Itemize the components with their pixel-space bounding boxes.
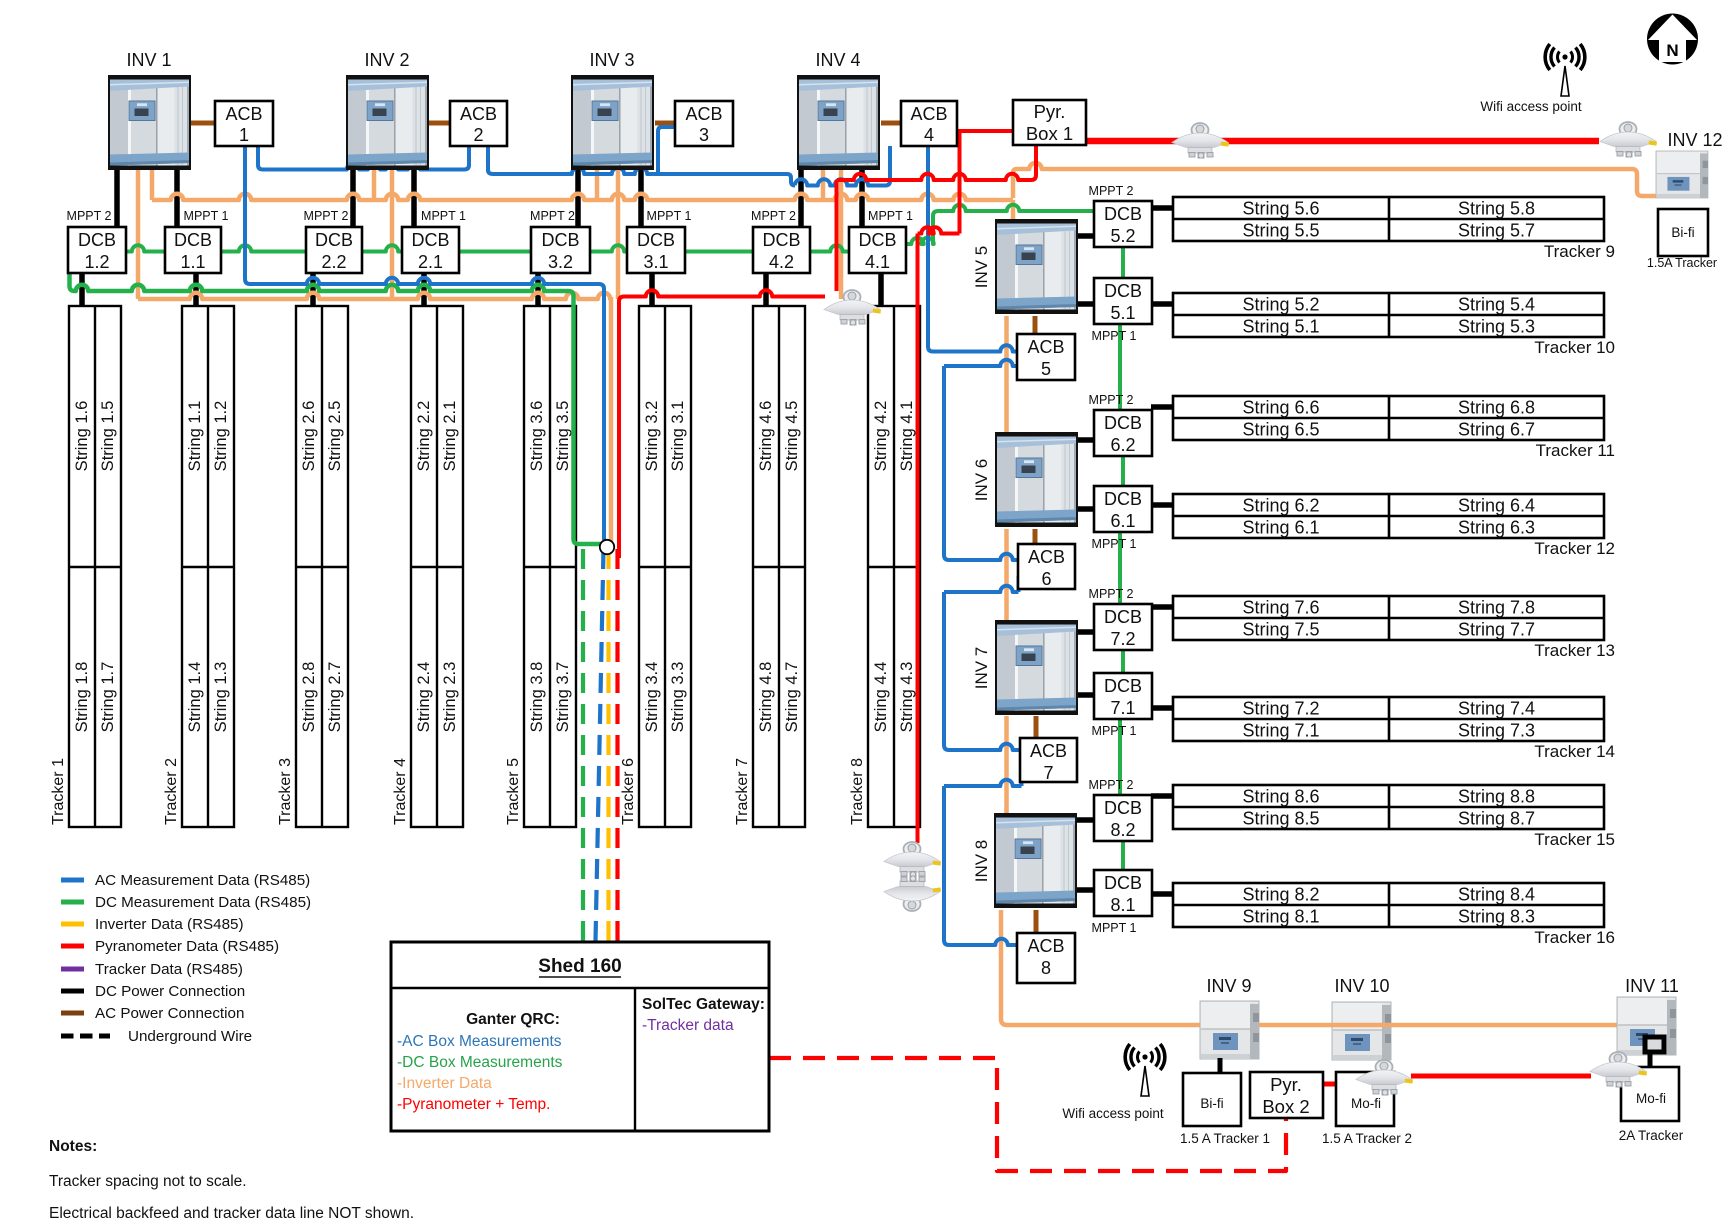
svg-text:String 5.6: String 5.6 <box>1242 199 1319 219</box>
svg-text:3: 3 <box>699 125 709 145</box>
svg-text:String 3.8: String 3.8 <box>528 662 546 733</box>
svg-text:Tracker spacing not to scale.: Tracker spacing not to scale. <box>49 1173 247 1190</box>
svg-text:String 2.1: String 2.1 <box>441 401 459 472</box>
svg-text:2A Tracker: 2A Tracker <box>1619 1128 1684 1143</box>
svg-text:String 3.2: String 3.2 <box>643 401 661 472</box>
svg-text:ACB: ACB <box>685 104 722 124</box>
svg-text:MPPT 1: MPPT 1 <box>184 209 229 223</box>
svg-text:Tracker 3: Tracker 3 <box>277 758 294 825</box>
svg-text:4.1: 4.1 <box>865 252 890 272</box>
svg-text:Tracker 11: Tracker 11 <box>1536 441 1615 460</box>
svg-text:N: N <box>1666 41 1678 60</box>
svg-text:Wifi access point: Wifi access point <box>1480 99 1582 114</box>
svg-text:String 4.2: String 4.2 <box>872 401 890 472</box>
svg-text:String 5.1: String 5.1 <box>1242 317 1319 337</box>
svg-text:String 6.3: String 6.3 <box>1458 518 1535 538</box>
svg-text:INV 11: INV 11 <box>1625 976 1679 996</box>
svg-text:Tracker 12: Tracker 12 <box>1534 539 1615 558</box>
svg-text:1.5 A Tracker 2: 1.5 A Tracker 2 <box>1322 1131 1412 1146</box>
svg-text:8: 8 <box>1041 958 1051 978</box>
svg-text:String 3.6: String 3.6 <box>528 401 546 472</box>
svg-text:String 1.5: String 1.5 <box>99 401 117 472</box>
svg-text:Notes:: Notes: <box>49 1138 97 1155</box>
svg-text:MPPT 2: MPPT 2 <box>67 209 112 223</box>
svg-text:ACB: ACB <box>225 104 262 124</box>
svg-text:String 8.1: String 8.1 <box>1242 907 1319 927</box>
svg-text:-Inverter Data: -Inverter Data <box>397 1075 492 1092</box>
svg-text:Bi-fi: Bi-fi <box>1671 225 1694 240</box>
svg-text:DCB: DCB <box>1104 281 1142 301</box>
svg-text:1.5A Tracker: 1.5A Tracker <box>1647 256 1717 270</box>
svg-text:String 2.3: String 2.3 <box>441 662 459 733</box>
svg-text:4.2: 4.2 <box>769 252 794 272</box>
svg-text:INV 6: INV 6 <box>972 459 991 502</box>
svg-text:MPPT 1: MPPT 1 <box>1092 537 1137 551</box>
svg-text:String 6.5: String 6.5 <box>1242 420 1319 440</box>
svg-text:MPPT 1: MPPT 1 <box>1092 329 1137 343</box>
svg-text:String 8.4: String 8.4 <box>1458 885 1535 905</box>
svg-text:Tracker 7: Tracker 7 <box>734 758 751 825</box>
svg-text:INV 3: INV 3 <box>589 50 634 70</box>
svg-text:Pyr.: Pyr. <box>1270 1074 1302 1095</box>
svg-text:String 2.6: String 2.6 <box>300 401 318 472</box>
svg-text:String 4.8: String 4.8 <box>757 662 775 733</box>
svg-text:DCB: DCB <box>637 230 675 250</box>
svg-text:MPPT 1: MPPT 1 <box>1092 724 1137 738</box>
svg-text:DCB: DCB <box>411 230 449 250</box>
svg-text:Inverter Data (RS485): Inverter Data (RS485) <box>95 916 244 933</box>
svg-text:Tracker Data (RS485): Tracker Data (RS485) <box>95 961 243 978</box>
svg-text:String 5.3: String 5.3 <box>1458 317 1535 337</box>
svg-text:ACB: ACB <box>460 104 497 124</box>
svg-text:MPPT 2: MPPT 2 <box>751 209 796 223</box>
svg-text:String 8.8: String 8.8 <box>1458 787 1535 807</box>
svg-text:ACB: ACB <box>1027 936 1064 956</box>
svg-text:String 8.6: String 8.6 <box>1242 787 1319 807</box>
svg-text:DCB: DCB <box>1104 607 1142 627</box>
svg-text:2.1: 2.1 <box>418 252 443 272</box>
svg-text:AC Power Connection: AC Power Connection <box>95 1005 244 1022</box>
svg-text:Mo-fi: Mo-fi <box>1636 1091 1666 1106</box>
svg-text:String 6.8: String 6.8 <box>1458 398 1535 418</box>
svg-text:Tracker 9: Tracker 9 <box>1544 242 1615 261</box>
svg-text:DCB: DCB <box>1104 676 1142 696</box>
svg-text:7.1: 7.1 <box>1110 698 1135 718</box>
svg-text:String 7.5: String 7.5 <box>1242 620 1319 640</box>
svg-text:String 6.4: String 6.4 <box>1458 496 1535 516</box>
svg-text:1.5 A Tracker 1: 1.5 A Tracker 1 <box>1180 1131 1270 1146</box>
svg-text:6: 6 <box>1041 569 1051 589</box>
svg-text:Ganter QRC:: Ganter QRC: <box>466 1011 560 1028</box>
svg-text:String 5.8: String 5.8 <box>1458 199 1535 219</box>
svg-text:8.1: 8.1 <box>1110 895 1135 915</box>
svg-text:ACB: ACB <box>910 104 947 124</box>
svg-text:INV 4: INV 4 <box>815 50 860 70</box>
svg-text:ACB: ACB <box>1030 741 1067 761</box>
svg-text:Tracker 8: Tracker 8 <box>849 758 866 825</box>
svg-text:String 3.7: String 3.7 <box>554 662 572 733</box>
svg-text:6.2: 6.2 <box>1110 435 1135 455</box>
svg-text:Tracker 15: Tracker 15 <box>1534 830 1615 849</box>
svg-text:MPPT 1: MPPT 1 <box>1092 921 1137 935</box>
svg-text:MPPT 2: MPPT 2 <box>1089 184 1134 198</box>
svg-text:DCB: DCB <box>1104 204 1142 224</box>
svg-text:String 2.7: String 2.7 <box>326 662 344 733</box>
svg-text:2.2: 2.2 <box>321 252 346 272</box>
svg-text:String 2.4: String 2.4 <box>415 662 433 733</box>
svg-text:String 3.1: String 3.1 <box>669 401 687 472</box>
svg-text:Wifi access point: Wifi access point <box>1062 1106 1164 1121</box>
svg-text:2: 2 <box>473 125 483 145</box>
svg-text:String 7.7: String 7.7 <box>1458 620 1535 640</box>
svg-text:DCB: DCB <box>762 230 800 250</box>
svg-text:Mo-fi: Mo-fi <box>1351 1096 1381 1111</box>
svg-text:5: 5 <box>1041 359 1051 379</box>
svg-text:DCB: DCB <box>1104 798 1142 818</box>
svg-text:String 8.5: String 8.5 <box>1242 809 1319 829</box>
svg-text:Tracker 5: Tracker 5 <box>505 758 522 825</box>
svg-text:String 1.3: String 1.3 <box>212 662 230 733</box>
svg-text:String 6.7: String 6.7 <box>1458 420 1535 440</box>
svg-text:DC Measurement Data (RS485): DC Measurement Data (RS485) <box>95 894 311 911</box>
svg-text:MPPT 2: MPPT 2 <box>1089 393 1134 407</box>
svg-text:Pyr.: Pyr. <box>1034 101 1066 122</box>
svg-text:INV 1: INV 1 <box>126 50 171 70</box>
svg-text:String 1.7: String 1.7 <box>99 662 117 733</box>
svg-text:6.1: 6.1 <box>1110 511 1135 531</box>
svg-text:4: 4 <box>924 125 934 145</box>
svg-text:INV 9: INV 9 <box>1206 976 1251 996</box>
svg-text:String 6.6: String 6.6 <box>1242 398 1319 418</box>
svg-text:String 1.6: String 1.6 <box>73 401 91 472</box>
svg-text:Tracker 16: Tracker 16 <box>1534 928 1615 947</box>
svg-text:5.1: 5.1 <box>1110 303 1135 323</box>
svg-text:MPPT 2: MPPT 2 <box>304 209 349 223</box>
svg-text:Electrical backfeed and tracke: Electrical backfeed and tracker data lin… <box>49 1205 414 1222</box>
svg-text:INV 12: INV 12 <box>1667 130 1722 150</box>
svg-text:Box 1: Box 1 <box>1026 123 1073 144</box>
svg-text:Tracker 1: Tracker 1 <box>50 758 67 825</box>
svg-text:String 1.2: String 1.2 <box>212 401 230 472</box>
svg-text:INV 2: INV 2 <box>364 50 409 70</box>
svg-text:Bi-fi: Bi-fi <box>1200 1096 1223 1111</box>
svg-text:String 2.8: String 2.8 <box>300 662 318 733</box>
svg-text:MPPT 2: MPPT 2 <box>1089 587 1134 601</box>
svg-text:INV 10: INV 10 <box>1334 976 1389 996</box>
svg-text:-Tracker data: -Tracker data <box>642 1017 734 1034</box>
svg-text:3.2: 3.2 <box>548 252 573 272</box>
svg-text:MPPT 2: MPPT 2 <box>1089 778 1134 792</box>
svg-text:-AC Box Measurements: -AC Box Measurements <box>397 1033 562 1050</box>
svg-text:String 7.2: String 7.2 <box>1242 699 1319 719</box>
svg-text:String 6.1: String 6.1 <box>1242 518 1319 538</box>
svg-text:String 4.1: String 4.1 <box>898 401 916 472</box>
svg-text:-DC Box Measurements: -DC Box Measurements <box>397 1054 563 1071</box>
svg-text:Pyranometer Data (RS485): Pyranometer Data (RS485) <box>95 938 279 955</box>
svg-text:INV 8: INV 8 <box>972 840 991 883</box>
svg-text:String 4.3: String 4.3 <box>898 662 916 733</box>
svg-text:String 2.5: String 2.5 <box>326 401 344 472</box>
svg-text:String 8.2: String 8.2 <box>1242 885 1319 905</box>
svg-text:String 2.2: String 2.2 <box>415 401 433 472</box>
svg-text:INV 5: INV 5 <box>972 246 991 289</box>
svg-text:Tracker 13: Tracker 13 <box>1534 641 1615 660</box>
svg-text:Tracker 6: Tracker 6 <box>620 758 637 825</box>
svg-text:String 7.1: String 7.1 <box>1242 721 1319 741</box>
svg-text:7: 7 <box>1043 763 1053 783</box>
svg-text:Tracker 10: Tracker 10 <box>1534 338 1615 357</box>
svg-text:String 5.7: String 5.7 <box>1458 221 1535 241</box>
svg-text:String 1.4: String 1.4 <box>186 662 204 733</box>
svg-text:DCB: DCB <box>1104 413 1142 433</box>
svg-text:String 8.7: String 8.7 <box>1458 809 1535 829</box>
svg-text:DCB: DCB <box>858 230 896 250</box>
svg-text:3.1: 3.1 <box>643 252 668 272</box>
svg-text:Box 2: Box 2 <box>1262 1096 1309 1117</box>
svg-text:1: 1 <box>239 125 249 145</box>
svg-text:AC Measurement Data (RS485): AC Measurement Data (RS485) <box>95 872 310 889</box>
svg-text:8.2: 8.2 <box>1110 820 1135 840</box>
svg-text:String 4.5: String 4.5 <box>783 401 801 472</box>
svg-text:DCB: DCB <box>541 230 579 250</box>
svg-text:String 7.8: String 7.8 <box>1458 598 1535 618</box>
svg-text:MPPT 1: MPPT 1 <box>647 209 692 223</box>
svg-text:String 4.4: String 4.4 <box>872 662 890 733</box>
svg-text:DCB: DCB <box>78 230 116 250</box>
svg-text:String 4.7: String 4.7 <box>783 662 801 733</box>
svg-text:ACB: ACB <box>1028 547 1065 567</box>
svg-text:String 1.8: String 1.8 <box>73 662 91 733</box>
svg-text:-Pyranometer + Temp.: -Pyranometer + Temp. <box>397 1096 551 1113</box>
svg-text:String 8.3: String 8.3 <box>1458 907 1535 927</box>
svg-text:DC Power Connection: DC Power Connection <box>95 983 245 1000</box>
svg-text:String 7.6: String 7.6 <box>1242 598 1319 618</box>
svg-text:DCB: DCB <box>1104 489 1142 509</box>
svg-text:String 3.4: String 3.4 <box>643 662 661 733</box>
svg-text:DCB: DCB <box>1104 873 1142 893</box>
svg-text:DCB: DCB <box>315 230 353 250</box>
svg-text:String 3.5: String 3.5 <box>554 401 572 472</box>
svg-text:ACB: ACB <box>1027 337 1064 357</box>
svg-text:String 5.2: String 5.2 <box>1242 295 1319 315</box>
svg-text:7.2: 7.2 <box>1110 629 1135 649</box>
svg-text:String 7.3: String 7.3 <box>1458 721 1535 741</box>
svg-text:String 5.4: String 5.4 <box>1458 295 1535 315</box>
svg-text:String 3.3: String 3.3 <box>669 662 687 733</box>
svg-text:String 7.4: String 7.4 <box>1458 699 1535 719</box>
svg-text:String 1.1: String 1.1 <box>186 401 204 472</box>
svg-text:String 4.6: String 4.6 <box>757 401 775 472</box>
svg-text:Underground Wire: Underground Wire <box>128 1028 252 1045</box>
svg-text:MPPT 1: MPPT 1 <box>421 209 466 223</box>
svg-text:Shed 160: Shed 160 <box>538 956 621 977</box>
svg-text:MPPT 1: MPPT 1 <box>868 209 913 223</box>
svg-text:Tracker 14: Tracker 14 <box>1534 742 1615 761</box>
svg-text:Tracker 2: Tracker 2 <box>163 758 180 825</box>
svg-text:1.1: 1.1 <box>180 252 205 272</box>
svg-text:5.2: 5.2 <box>1110 226 1135 246</box>
svg-text:String 6.2: String 6.2 <box>1242 496 1319 516</box>
svg-text:SolTec Gateway:: SolTec Gateway: <box>642 996 765 1013</box>
svg-text:INV 7: INV 7 <box>972 647 991 690</box>
svg-text:MPPT 2: MPPT 2 <box>530 209 575 223</box>
svg-text:1.2: 1.2 <box>84 252 109 272</box>
svg-text:DCB: DCB <box>174 230 212 250</box>
svg-text:Tracker 4: Tracker 4 <box>392 758 409 825</box>
svg-text:String 5.5: String 5.5 <box>1242 221 1319 241</box>
